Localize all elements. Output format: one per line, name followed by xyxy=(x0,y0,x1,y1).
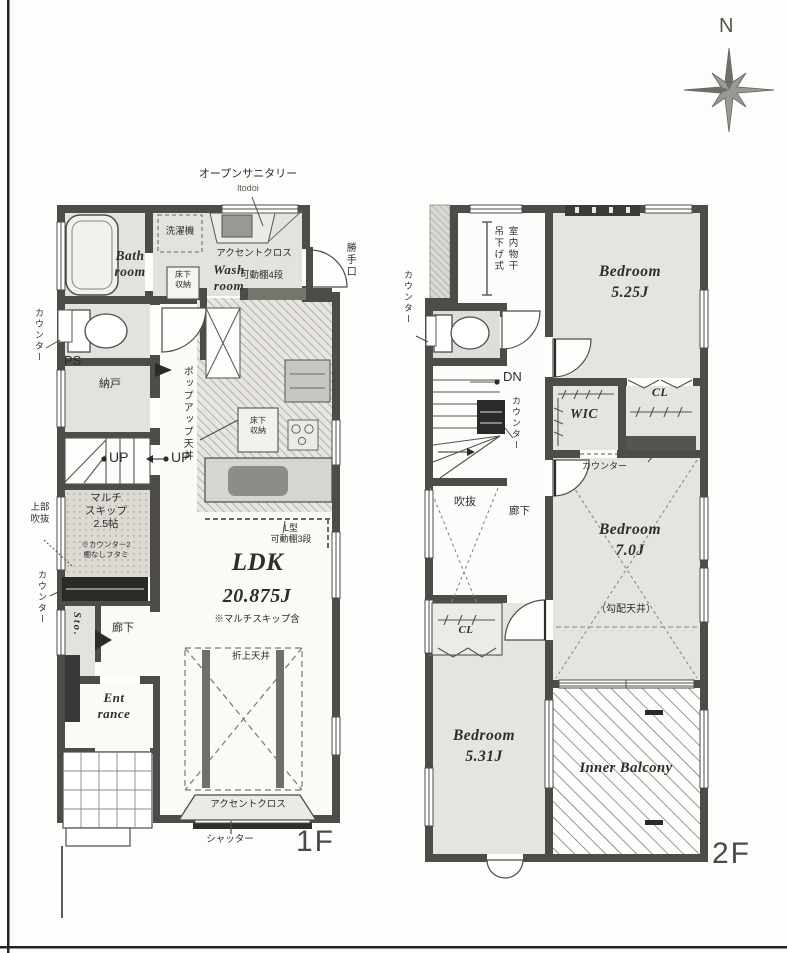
stair-counter xyxy=(477,400,505,434)
hallway-label-1f: 廊下 xyxy=(112,622,134,635)
void-label: 吹抜 xyxy=(442,496,488,509)
cl-lower-label: CL xyxy=(448,624,484,637)
porch-step xyxy=(66,828,130,846)
bath-room-label: Bath room xyxy=(86,248,174,281)
counter-mid-label: カウンター xyxy=(582,461,627,472)
stove-icon xyxy=(288,420,318,450)
multi-skip-label: マルチ スキップ 2.5帖 xyxy=(66,492,146,531)
sto-label: Sto. xyxy=(69,612,82,660)
vanity-icon xyxy=(210,213,275,243)
balcony-hook xyxy=(645,710,663,715)
indoor-drying-label: 室内物干 吊下げ式 xyxy=(490,226,519,316)
raised-ceiling-label: 折上天井 xyxy=(214,651,288,663)
porch-tiles xyxy=(63,752,152,828)
l-shelf-label: L型 可動棚3段 xyxy=(252,523,330,545)
cl-counter xyxy=(626,436,696,450)
hallway-label-2f: 廊下 xyxy=(509,505,530,518)
dn-label: DN xyxy=(503,369,522,385)
bottom-door-arc xyxy=(487,860,523,878)
kitchen-back-counter xyxy=(285,360,330,402)
washer-label: 洗濯機 xyxy=(160,226,200,238)
pillar xyxy=(202,650,210,788)
ldk-note-label: ※マルチスキップ含 xyxy=(193,614,321,626)
accent-cross-bottom-label: アクセントクロス xyxy=(200,799,296,811)
kitchen-island xyxy=(205,458,332,502)
bedroom-70-label: Bedroom 7.0J xyxy=(566,520,694,562)
counter-wc-label: カウンター xyxy=(402,270,413,342)
entrance-label: Ent rance xyxy=(78,690,150,722)
floor-storage-wash-label: 床下 収納 xyxy=(167,270,199,290)
floor2-tag: 2F xyxy=(712,836,751,873)
floorplan-drawing xyxy=(0,0,787,953)
compass-rose xyxy=(684,48,774,132)
sloped-ceiling-label: （勾配天井） xyxy=(578,604,674,616)
accent-cross-top-label: アクセントクロス xyxy=(208,248,300,260)
upper-void-label: 上部 吹抜 xyxy=(24,502,56,525)
wic-label: WIC xyxy=(556,406,612,422)
ps-label: PS xyxy=(64,353,81,369)
wc-counter-1f xyxy=(58,310,72,342)
compass-north-label: N xyxy=(719,14,733,38)
shutter-label: シャッター xyxy=(198,834,262,846)
ldk-label: LDK xyxy=(205,548,310,579)
multi-skip-note-label: ※カウンター2 棚なしフタミ xyxy=(62,540,150,560)
balcony-hook xyxy=(645,820,663,825)
high-window-band xyxy=(565,205,640,216)
pillar xyxy=(276,650,284,788)
counter-lower-left-label: カウンター xyxy=(36,570,47,646)
back-door-label: 勝手口 xyxy=(343,242,355,308)
popup-ceiling-label: ポップアップ天井 xyxy=(180,366,192,502)
open-sanitary-label: オープンサニタリー xyxy=(192,168,304,181)
counter-upper-left-label: カウンター xyxy=(33,308,44,384)
up-label-left: UP xyxy=(109,449,128,466)
floor1-tag: 1F xyxy=(296,824,335,861)
movable-shelf-label: 可動棚4段 xyxy=(240,270,283,282)
fridge-space xyxy=(206,308,240,378)
counter-stairs-label: カウンター xyxy=(510,396,521,468)
inner-balcony-label: Inner Balcony xyxy=(554,760,698,778)
cl-upper-label: CL xyxy=(640,385,680,400)
back-door-arc xyxy=(306,247,347,289)
bedroom-531-label: Bedroom 5.31J xyxy=(426,726,542,768)
sink-icon xyxy=(228,466,288,496)
open-sanitary-sublabel: ltodoi xyxy=(204,183,292,194)
storeroom-label: 納戸 xyxy=(90,378,130,391)
floor-storage-kitchen-label: 床下 収納 xyxy=(240,416,276,436)
bedroom-525-label: Bedroom 5.25J xyxy=(566,262,694,304)
ldk-size-label: 20.875J xyxy=(197,584,317,608)
lower-roof-hatch xyxy=(430,205,450,303)
shutter-band xyxy=(193,823,312,829)
floorplan-page: オープンサニタリー ltodoi 洗濯機 Bath room アクセントクロス … xyxy=(0,0,787,953)
